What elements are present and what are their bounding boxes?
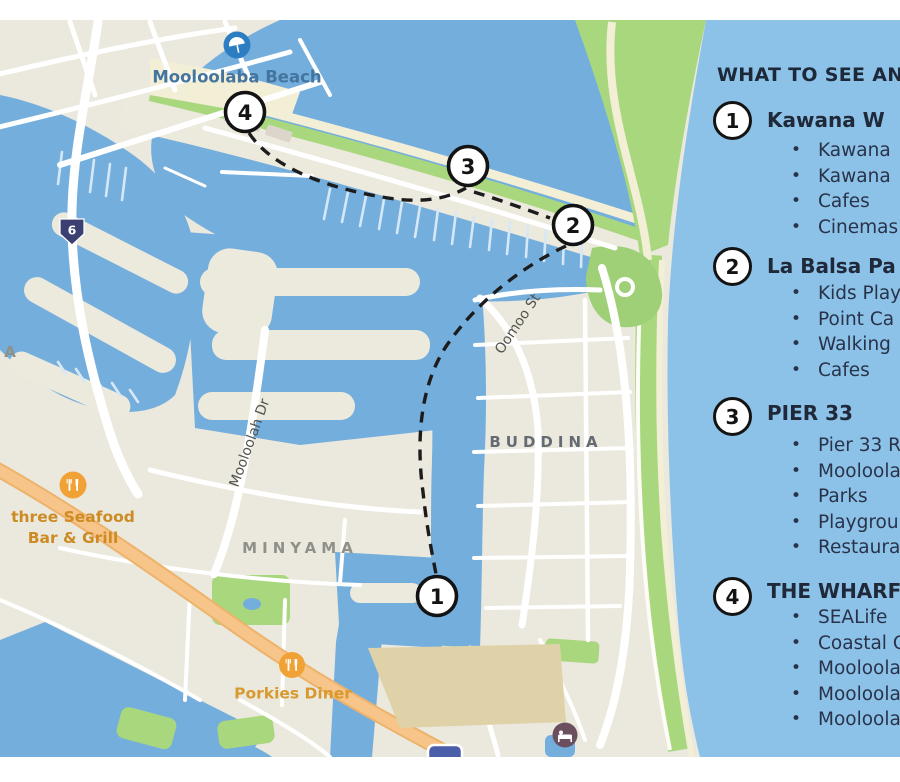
bullet-item: Mooloola [791, 656, 900, 682]
suburb-label-partial: A [4, 343, 16, 361]
panel-item-1-bullets: Kawana Kawana Cafes Cinemas [791, 138, 898, 240]
map-marker-4[interactable]: 4 [226, 93, 265, 132]
panel-header: WHAT TO SEE AND [717, 64, 900, 86]
bullet-item: Restaura [791, 535, 900, 561]
diner-restaurant-icon[interactable] [279, 652, 305, 678]
panel-item-1-number: 1 [713, 101, 752, 140]
marker-3-number: 3 [461, 155, 476, 179]
bullet-item: Kawana [791, 138, 898, 164]
panel-item-4-bullets: SEALife Coastal C Mooloola Mooloola Mool… [791, 605, 900, 733]
bottom-margin-strip [0, 757, 900, 782]
panel-item-1-number-text: 1 [726, 109, 740, 133]
panel-item-2-title: La Balsa Pa [767, 252, 896, 280]
panel-item-4-title: THE WHARF [767, 577, 900, 605]
bullet-item: Mooloola [791, 682, 900, 708]
map-marker-1[interactable]: 1 [418, 577, 457, 616]
panel-item-4-number-text: 4 [726, 585, 740, 609]
panel-item-4-number: 4 [713, 577, 752, 616]
panel-item-2-bullets: Kids Play Point Ca Walking Cafes [791, 281, 900, 383]
poi-label-porkies[interactable]: Porkies Diner [234, 684, 352, 705]
bullet-item: Playgrou [791, 510, 900, 536]
bullet-item: Pier 33 Re [791, 433, 900, 459]
top-margin-strip [0, 0, 900, 20]
bullet-item: Mooloola [791, 707, 900, 733]
marker-4-number: 4 [238, 101, 253, 125]
infographic-page: { "map": { "marker_labels": ["1", "2", "… [0, 0, 900, 782]
bullet-item: Cafes [791, 358, 900, 384]
bullet-item: Point Ca [791, 307, 900, 333]
marker-2-number: 2 [566, 214, 581, 238]
map-canvas[interactable]: 6 [0, 0, 900, 782]
panel-item-2-number: 2 [713, 247, 752, 286]
panel-item-3-title: PIER 33 [767, 399, 853, 427]
bullet-item: SEALife [791, 605, 900, 631]
park-pond [243, 598, 261, 610]
panel-item-3-bullets: Pier 33 Re Mooloola Parks Playgrou Resta… [791, 433, 900, 561]
panel-item-3-number: 3 [713, 397, 752, 436]
bullet-item: Walking [791, 332, 900, 358]
bullet-item: Kids Play [791, 281, 900, 307]
bullet-item: Cinemas [791, 215, 898, 241]
bullet-item: Mooloola [791, 459, 900, 485]
lodging-icon[interactable] [553, 723, 578, 748]
panel-item-1-title: Kawana W [767, 106, 885, 134]
bullet-item: Kawana [791, 164, 898, 190]
bullet-item: Parks [791, 484, 900, 510]
suburb-label-minyama: MINYAMA [242, 539, 358, 557]
poi-label-seafood[interactable]: three Seafood Bar & Grill [7, 507, 139, 549]
suburb-label-buddina: BUDDINA [489, 433, 602, 451]
seafood-restaurant-icon[interactable] [60, 472, 87, 499]
panel-item-2-number-text: 2 [726, 255, 740, 279]
map-marker-3[interactable]: 3 [449, 147, 488, 186]
bullet-item: Coastal C [791, 631, 900, 657]
panel-item-3-number-text: 3 [726, 405, 740, 429]
route-shield-number: 6 [68, 223, 77, 238]
beach-label: Mooloolaba Beach [152, 68, 321, 87]
bullet-item: Cafes [791, 189, 898, 215]
marker-1-number: 1 [430, 585, 445, 609]
map-marker-2[interactable]: 2 [554, 206, 593, 245]
beach-icon[interactable] [224, 32, 251, 59]
